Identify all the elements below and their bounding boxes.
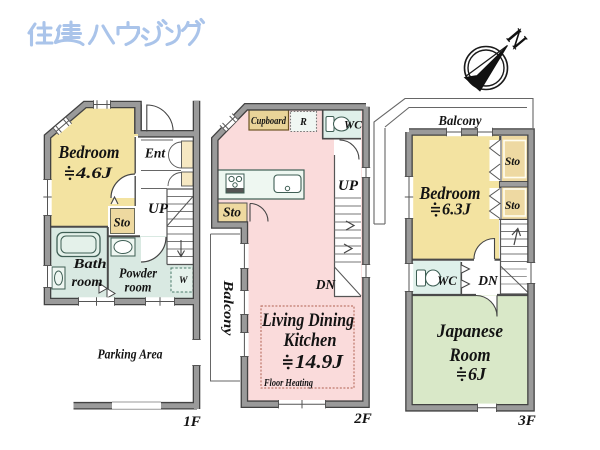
svg-text:Sto: Sto — [223, 205, 241, 220]
svg-text:4.6J: 4.6J — [75, 165, 114, 182]
svg-text:6.3J: 6.3J — [442, 200, 472, 219]
svg-text:6J: 6J — [468, 364, 487, 384]
svg-text:Cupboard: Cupboard — [251, 116, 287, 127]
svg-text:DN: DN — [477, 273, 499, 288]
svg-text:Japanese: Japanese — [436, 321, 503, 342]
svg-text:Powder: Powder — [119, 266, 158, 281]
svg-text:Balcony: Balcony — [438, 113, 483, 128]
svg-text:14.9J: 14.9J — [295, 351, 344, 373]
svg-text:Room: Room — [449, 345, 491, 366]
svg-text:WC: WC — [344, 120, 362, 132]
svg-text:DN: DN — [315, 277, 337, 292]
svg-text:room: room — [125, 280, 152, 295]
svg-text:Sto: Sto — [505, 156, 521, 168]
svg-text:WC: WC — [437, 274, 457, 288]
svg-text:Bedroom: Bedroom — [58, 142, 120, 162]
svg-text:UP: UP — [148, 201, 169, 217]
svg-text:Kitchen: Kitchen — [283, 330, 337, 351]
svg-text:Sto: Sto — [505, 200, 521, 212]
svg-text:Living Dining: Living Dining — [261, 310, 354, 331]
svg-text:1F: 1F — [183, 414, 201, 430]
svg-text:Ent: Ent — [144, 146, 167, 161]
svg-text:W: W — [179, 276, 188, 286]
svg-text:Floor Heating: Floor Heating — [263, 378, 313, 389]
svg-text:3F: 3F — [517, 413, 536, 429]
svg-text:room: room — [72, 275, 103, 290]
svg-text:R: R — [299, 117, 307, 128]
svg-text:Sto: Sto — [114, 216, 131, 230]
svg-text:Balcony: Balcony — [221, 279, 236, 336]
svg-text:UP: UP — [338, 178, 359, 194]
svg-text:Parking Area: Parking Area — [98, 348, 163, 363]
svg-text:2F: 2F — [353, 411, 372, 427]
svg-text:Bath: Bath — [72, 257, 106, 272]
